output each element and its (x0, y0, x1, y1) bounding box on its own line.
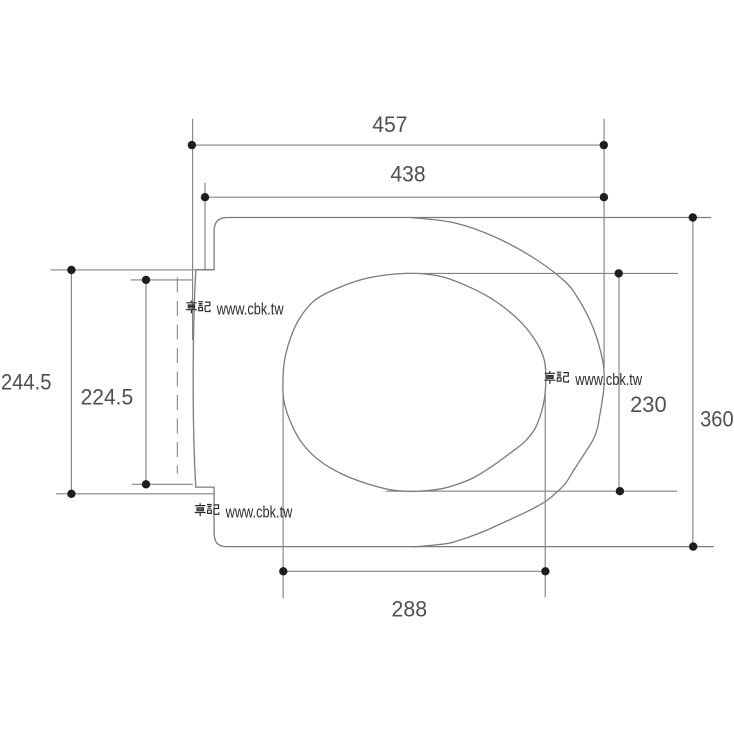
svg-text:244.5: 244.5 (1, 370, 52, 395)
svg-text:www.cbk.tw: www.cbk.tw (574, 372, 642, 390)
svg-text:www.cbk.tw: www.cbk.tw (225, 504, 293, 522)
svg-text:224.5: 224.5 (81, 385, 134, 410)
svg-text:360: 360 (700, 407, 734, 432)
svg-text:230: 230 (630, 392, 667, 417)
svg-text:www.cbk.tw: www.cbk.tw (216, 301, 284, 319)
svg-text:438: 438 (390, 161, 425, 186)
svg-text:288: 288 (392, 596, 428, 621)
svg-text:457: 457 (372, 112, 407, 137)
